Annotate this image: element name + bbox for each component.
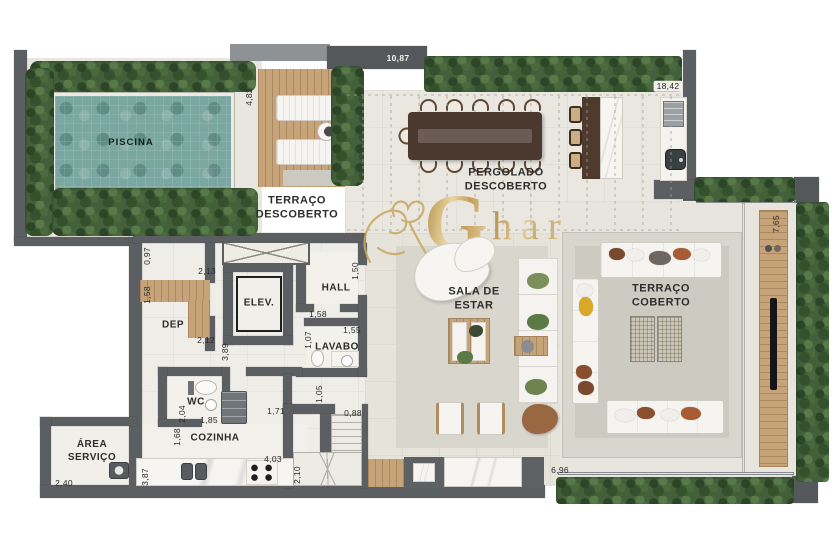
dim-pool-side: 4,82 [245,88,254,106]
pillow [577,284,593,297]
label-elev: ELEV. [244,297,274,310]
fridge [221,391,247,424]
plant [525,379,547,395]
dim-servico-width: 2,40 [55,479,73,488]
dim-stairs-width: 0,88 [344,409,362,418]
armchair [436,402,464,435]
dim-corridor: 3,89 [221,343,230,361]
stairs-upper-flight [331,414,362,454]
shaft-hatch [222,241,310,265]
terrace-sofa-top [600,242,722,278]
counter-marble [444,457,522,487]
kitchen-sink [195,463,207,480]
armchair [477,402,505,435]
dim-terrace-panel: 7,65 [772,215,781,233]
wall-elev-bottom [223,336,293,345]
ottoman [657,316,682,362]
label-sala: SALA DE ESTAR [448,285,499,314]
pillow [673,248,691,260]
hedge-bottom-right [556,477,794,504]
pillow [681,407,701,420]
vase [774,245,781,252]
terrace-sofa-bottom [606,400,724,434]
label-lavabo: LAVABO [315,341,359,354]
plant [527,314,549,330]
hedge-pool-bottom [52,188,258,236]
bowl [521,340,534,353]
dim-dep-width: 2,13 [198,267,216,276]
dim-deck-top: 10,87 [387,54,410,63]
dim-stairs-pass: 1,05 [315,385,324,403]
hedge-right-vine [796,202,829,482]
wall-wc-top-a [158,367,222,376]
dim-dep-door: 1,58 [143,286,152,304]
wc-sink [205,399,217,411]
pillow [661,409,679,421]
lavabo-basin [341,355,353,367]
wall-corridor [283,374,292,407]
dim-kitchen-side: 2,10 [293,466,302,484]
dim-lavabo-width: 1,55 [343,326,361,335]
dep-wood-floor [188,300,210,338]
wall-notch [129,237,142,487]
kitchen-counter [136,458,310,486]
terrace-sofa-left [572,278,599,404]
counter-inset [413,463,435,482]
counter-dark-end [522,457,544,488]
label-terraco-coberto: TERRAÇO COBERTO [632,282,690,311]
counter-dark-box [404,457,444,488]
pillow [579,297,593,316]
wall-dep-right-a [205,243,215,283]
label-wc: WC [187,396,205,409]
label-terraco-descoberto: TERRAÇO DESCOBERTO [256,194,338,223]
dining-table [408,112,542,160]
hedge-pergola-top [424,56,682,92]
wall-pool-bottom [14,237,136,246]
dim-kitchen-height: 3,87 [141,468,150,486]
dim-dep-bottom: 2,12 [197,336,215,345]
label-pergolado: PERGOLADO DESCOBERTO [465,166,547,195]
shelf-side-table [514,336,548,356]
plant-bench [448,318,490,364]
tv [770,298,777,390]
label-area-servico: ÁREA SERVIÇO [68,438,116,464]
pillow [693,249,710,261]
kitchen-sink [181,463,193,480]
dim-living-width: 6,96 [551,466,569,475]
dim-lavabo-door: 1,07 [304,331,313,349]
pillar-top-right [794,177,819,203]
plant [457,351,473,364]
hedge-pool-top [30,61,256,92]
wall-wc-left [158,367,167,425]
terrace-bottom-line [558,472,794,475]
pillow [615,409,635,422]
servico-sink [109,462,129,479]
pillow [649,251,671,265]
pillow [576,365,592,379]
shelf-unit [518,258,558,404]
wc-toilet [195,380,217,395]
watermark-text: har [492,206,570,246]
wall-elev-right [283,263,293,345]
dim-wc-lower: 1,68 [173,428,182,446]
hedge-pool-left [25,68,54,236]
table-runner [418,129,532,143]
wall-wc-top-b [246,367,302,376]
vase-decor [765,243,781,253]
wall-sala-left-b [358,295,367,376]
plant [527,273,549,289]
dim-wc-height: 2,04 [178,405,187,423]
vase [765,245,772,252]
wall-elev-left [223,263,233,345]
pillow [578,381,594,395]
stairs-winders [293,452,362,486]
dim-hall-bottom: 1,58 [309,310,327,319]
dim-dep-entry: 0,97 [143,247,152,265]
wall-servico-top [40,417,137,426]
wall-lavabo-bottom [296,368,367,377]
hedge-terrace-top [694,177,795,202]
stove [246,460,278,485]
lounger [276,139,334,165]
label-piscina: PISCINA [108,137,154,149]
deck-top-ledge [230,44,330,61]
wc-toilet-tank [188,381,194,395]
pillow [609,248,625,260]
dim-kitchen-width: 4,03 [264,455,282,464]
pillow [627,249,644,261]
pillow [637,407,655,419]
label-cozinha: COZINHA [190,432,239,445]
lounger [276,95,334,121]
dim-hall-door: 1,50 [351,262,360,280]
dim-kitchen-pass: 1,71 [267,407,285,416]
ottoman [630,316,655,362]
floor-plan: G har PISCINA TERRAÇO DESCOBERTO PERGOLA… [0,0,838,554]
dim-gourmet-top: 18,42 [654,81,683,92]
label-hall: HALL [322,282,351,295]
balcony-edge [742,203,745,473]
dim-wc-width: 1,85 [200,416,218,425]
counter-wood [368,459,404,487]
label-dep: DEP [162,319,184,332]
wall-servico-left [40,417,51,494]
